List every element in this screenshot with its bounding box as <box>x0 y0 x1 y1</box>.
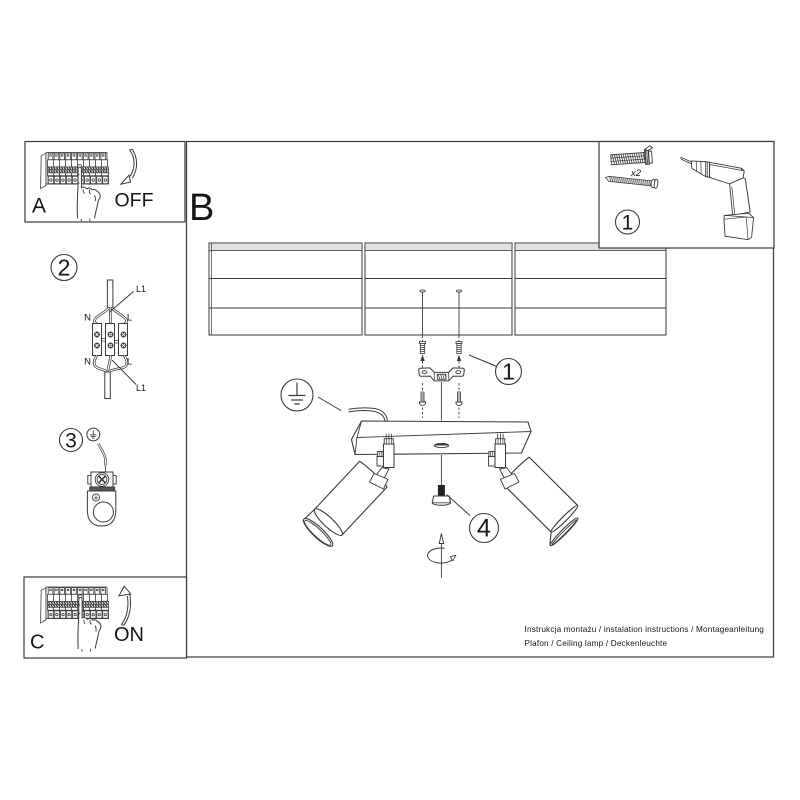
svg-text:L: L <box>127 313 132 324</box>
svg-text:x2: x2 <box>630 168 642 179</box>
svg-text:ON: ON <box>114 624 144 646</box>
svg-text:N: N <box>84 313 91 324</box>
svg-text:3: 3 <box>65 430 77 453</box>
svg-text:1: 1 <box>622 212 634 235</box>
svg-text:A: A <box>32 195 46 218</box>
svg-text:4: 4 <box>477 515 491 543</box>
svg-text:L1: L1 <box>136 284 146 294</box>
svg-text:Plafon / Ceiling lamp / Decken: Plafon / Ceiling lamp / Deckenleuchte <box>525 639 668 648</box>
svg-text:Instrukcja montażu / instalati: Instrukcja montażu / instalation instruc… <box>525 625 765 634</box>
svg-text:L1: L1 <box>136 383 146 393</box>
svg-text:C: C <box>30 632 44 654</box>
svg-text:N: N <box>84 357 91 368</box>
svg-text:OFF: OFF <box>115 190 154 212</box>
svg-text:B: B <box>189 187 214 229</box>
svg-text:1: 1 <box>502 359 515 385</box>
svg-text:2: 2 <box>58 255 71 281</box>
svg-text:L: L <box>127 357 132 368</box>
